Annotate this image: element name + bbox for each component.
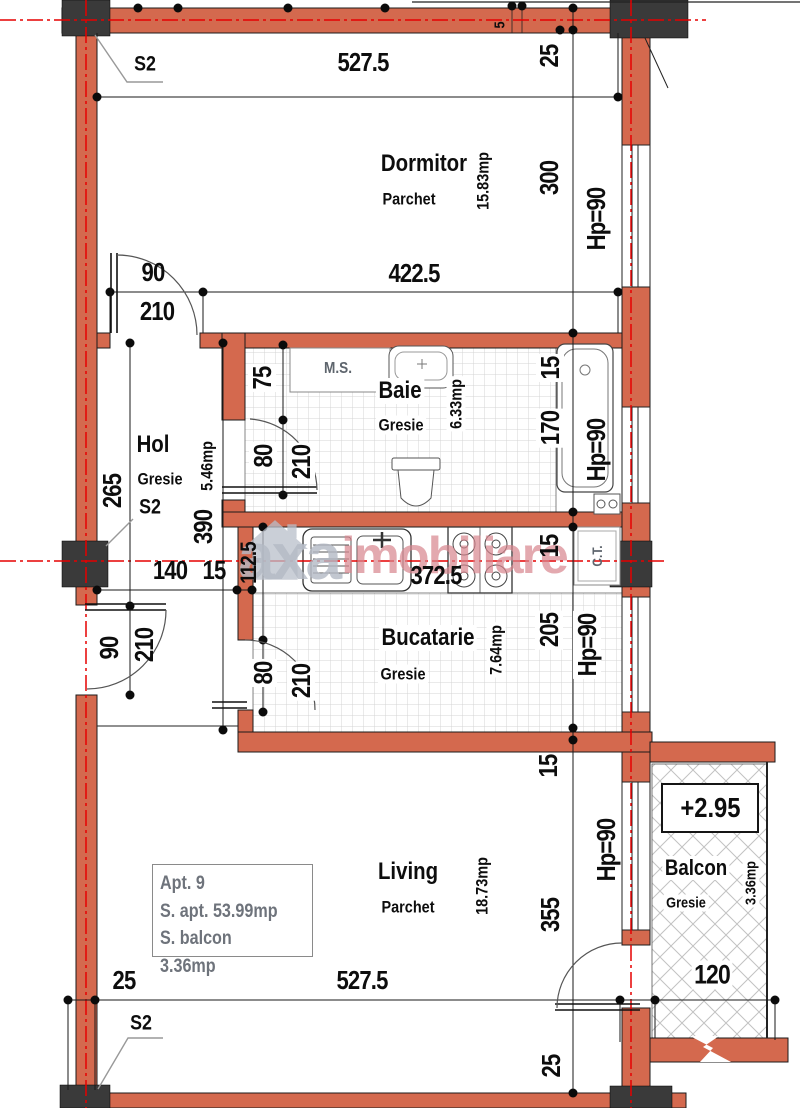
room-floor-hol: Gresie bbox=[138, 471, 183, 488]
window-label-dormitor: Hp=90 bbox=[583, 188, 609, 251]
dim-hol-length: 390 bbox=[190, 510, 216, 544]
room-name-baie: Baie bbox=[376, 378, 424, 404]
room-name-living: Living bbox=[378, 860, 438, 884]
marker-s2-top: S2 bbox=[134, 54, 156, 75]
dim-dormitor-door-w: 90 bbox=[142, 259, 165, 285]
room-area-baie: 6.33mp bbox=[447, 377, 466, 432]
dim-bucatarie-height: 205 bbox=[535, 610, 563, 649]
marker-s2-bottom: S2 bbox=[130, 1013, 152, 1034]
dim-dormitor-height: 300 bbox=[536, 161, 562, 195]
dim-dormitor-wall: 15 bbox=[536, 354, 564, 382]
dim-top-offset: 5 bbox=[493, 21, 508, 28]
room-name-balcon: Balcon bbox=[662, 856, 729, 880]
dim-baie-length: 170 bbox=[536, 408, 564, 447]
dim-baie-door-h: 210 bbox=[287, 442, 315, 481]
room-floor-balcon: Gresie bbox=[664, 895, 709, 912]
room-name-dormitor: Dormitor bbox=[381, 152, 467, 176]
dim-bottom-width: 527.5 bbox=[336, 967, 387, 993]
window-label-bucatarie: Hp=90 bbox=[573, 611, 601, 679]
dim-hol-to-door: 265 bbox=[99, 474, 125, 508]
dim-bucatarie-counter: 112.5 bbox=[238, 542, 260, 584]
dim-entry-door-h: 210 bbox=[131, 628, 157, 662]
room-floor-bucatarie: Gresie bbox=[378, 665, 428, 684]
window-label-living: Hp=90 bbox=[593, 819, 619, 882]
room-area-dormitor: 15.83mp bbox=[475, 152, 492, 210]
dim-baie-door-w: 80 bbox=[249, 442, 277, 470]
dim-bucatarie-width: 372.5 bbox=[410, 562, 461, 588]
room-floor-baie: Gresie bbox=[376, 416, 426, 435]
room-floor-living: Parchet bbox=[381, 899, 434, 916]
dim-hol-wall: 15 bbox=[203, 557, 226, 583]
room-area-living: 18.73mp bbox=[474, 857, 491, 915]
labels-layer: S2 S2 S2 527.5 5 25 300 Hp=90 Dormitor P… bbox=[0, 0, 800, 1108]
dim-entry-door-w: 90 bbox=[96, 637, 122, 660]
dim-bucatarie-door-w: 80 bbox=[249, 659, 277, 687]
dim-bucatarie-counter-wall: 15 bbox=[536, 535, 562, 558]
room-name-bucatarie: Bucatarie bbox=[379, 625, 477, 651]
dim-living-height: 355 bbox=[537, 898, 563, 932]
washing-machine-label: M.S. bbox=[324, 361, 352, 377]
room-name-hol: Hol bbox=[137, 433, 170, 457]
dim-top-width: 527.5 bbox=[337, 49, 388, 75]
room-area-bucatarie: 7.64mp bbox=[487, 623, 506, 678]
dim-bottom-wall-left: 25 bbox=[113, 967, 136, 993]
floor-plan: axa imobiliare S2 S2 S2 527.5 5 25 300 H… bbox=[0, 0, 800, 1108]
dim-balcon-width: 120 bbox=[692, 961, 733, 990]
dim-top-wall: 25 bbox=[536, 45, 562, 68]
dim-hol-width: 140 bbox=[153, 557, 187, 583]
dim-dormitor-width: 422.5 bbox=[388, 260, 439, 286]
room-floor-dormitor: Parchet bbox=[382, 191, 435, 208]
room-area-hol: 5.46mp bbox=[199, 441, 216, 491]
dim-bottom-wall-right: 25 bbox=[538, 1055, 564, 1078]
dim-living-wall: 15 bbox=[535, 755, 561, 778]
room-area-balcon: 3.36mp bbox=[743, 858, 760, 907]
dim-baie-door-offset: 75 bbox=[248, 364, 276, 392]
dim-bucatarie-door-h: 210 bbox=[287, 661, 315, 700]
marker-s2-hol: S2 bbox=[139, 497, 161, 518]
window-label-baie: Hp=90 bbox=[583, 419, 609, 482]
central-heating-label: C.T. bbox=[590, 545, 604, 566]
dim-dormitor-door-h: 210 bbox=[140, 298, 174, 324]
